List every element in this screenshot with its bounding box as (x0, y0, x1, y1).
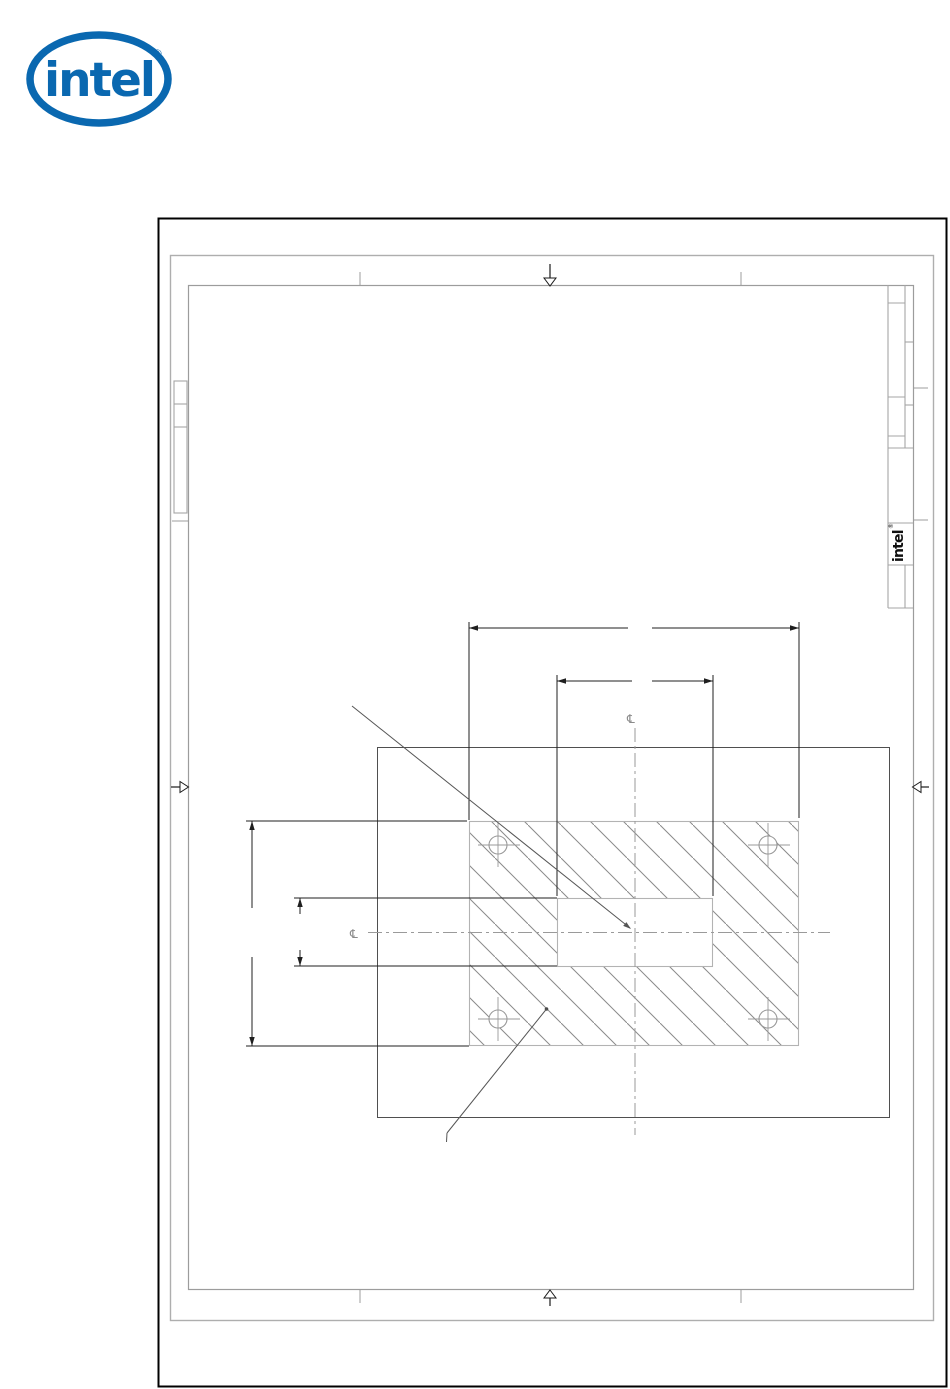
sheet-outer-border (159, 219, 947, 1387)
title-block-intel-logo: intel ® (888, 523, 907, 562)
alignment-marker-right (913, 782, 930, 793)
document-page: intel ® (0, 0, 950, 1389)
dim-arrow-left-icon (469, 625, 478, 630)
sheet-middle-border (171, 256, 934, 1321)
arrow-right-icon (180, 782, 189, 793)
revision-strip (174, 381, 187, 513)
dim-arrow-left-icon (557, 678, 566, 683)
alignment-marker-bottom (544, 1290, 556, 1306)
mechanical-drawing: ℄ ℄ (246, 622, 890, 1142)
title-block: intel ® (888, 285, 913, 608)
alignment-marker-left (171, 782, 189, 793)
drawing-sheet: intel ® (0, 0, 950, 1389)
sheet-inner-border (189, 286, 914, 1290)
title-block-logo-text: intel (891, 530, 907, 562)
centerline-symbol-left: ℄ (349, 927, 358, 941)
dim-arrow-up-icon (249, 821, 254, 830)
alignment-marker-top (544, 264, 556, 286)
dim-arrow-down-icon (249, 1037, 254, 1046)
arrow-down-icon (544, 278, 556, 286)
dim-arrow-up-icon (297, 898, 302, 907)
dim-arrow-right-icon (704, 678, 713, 683)
title-block-logo-registered-mark: ® (888, 523, 895, 529)
dim-arrow-right-icon (790, 625, 799, 630)
centerline-symbol-top: ℄ (626, 712, 635, 726)
zone-ticks (172, 272, 928, 1303)
dim-arrow-down-icon (297, 957, 302, 966)
arrow-up-icon (544, 1290, 556, 1298)
